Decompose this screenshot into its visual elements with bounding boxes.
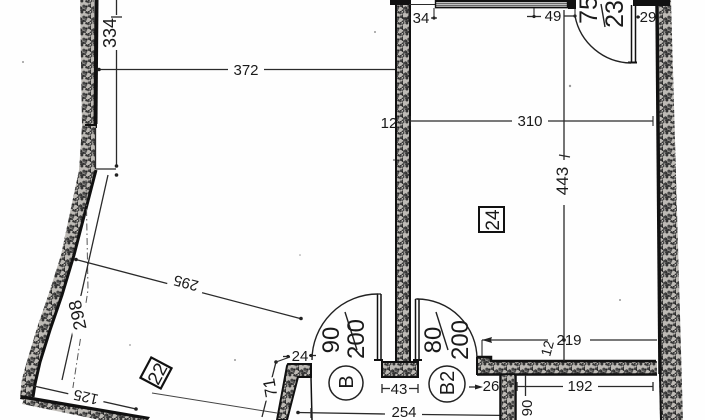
svg-text:443: 443 <box>553 167 572 195</box>
svg-text:34: 34 <box>413 10 430 27</box>
svg-text:192: 192 <box>567 378 592 395</box>
svg-text:310: 310 <box>517 113 542 130</box>
svg-text:24: 24 <box>483 209 504 231</box>
svg-text:254: 254 <box>391 404 416 420</box>
svg-text:334: 334 <box>100 18 120 48</box>
svg-text:90: 90 <box>318 327 345 354</box>
svg-text:372: 372 <box>233 62 258 79</box>
svg-text:B2: B2 <box>437 371 459 395</box>
svg-text:23: 23 <box>601 0 629 28</box>
svg-text:80: 80 <box>420 327 447 354</box>
svg-text:43: 43 <box>391 381 408 398</box>
svg-text:200: 200 <box>447 320 474 360</box>
svg-text:71: 71 <box>259 377 281 399</box>
svg-text:24: 24 <box>292 348 309 365</box>
svg-text:75: 75 <box>575 0 603 24</box>
svg-text:49: 49 <box>545 8 562 25</box>
svg-text:90: 90 <box>519 400 536 417</box>
svg-text:219: 219 <box>556 332 581 349</box>
svg-text:12: 12 <box>381 115 398 132</box>
svg-text:29: 29 <box>640 9 657 26</box>
svg-text:B: B <box>336 375 358 388</box>
svg-text:26: 26 <box>483 378 500 395</box>
svg-text:200: 200 <box>343 319 370 359</box>
